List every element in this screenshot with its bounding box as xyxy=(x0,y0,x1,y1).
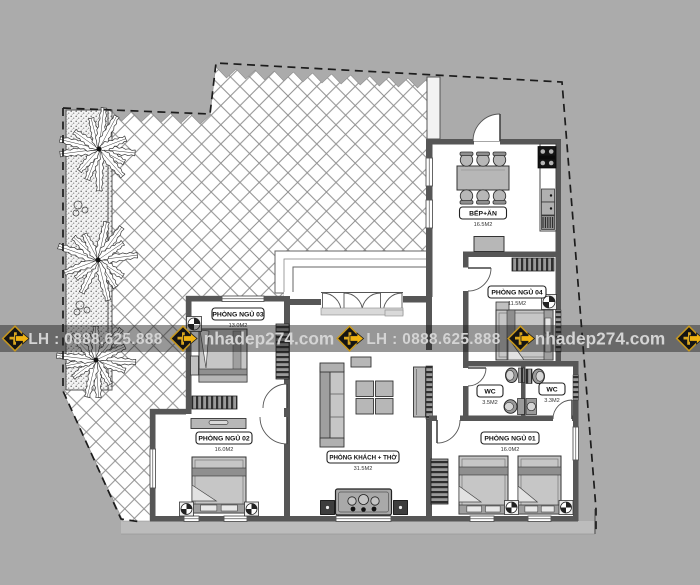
svg-text:31.5M2: 31.5M2 xyxy=(354,466,373,472)
svg-text:16.0M2: 16.0M2 xyxy=(501,447,520,453)
svg-text:WC: WC xyxy=(484,388,495,395)
svg-text:LH : 0888.625.888: LH : 0888.625.888 xyxy=(28,331,162,348)
svg-text:LH : 0888.625.888: LH : 0888.625.888 xyxy=(366,331,500,348)
svg-text:nhadep274.com: nhadep274.com xyxy=(535,329,666,349)
svg-text:nhadep274.com: nhadep274.com xyxy=(204,329,335,349)
svg-text:16.0M2: 16.0M2 xyxy=(215,447,234,453)
svg-text:3.5M2: 3.5M2 xyxy=(482,400,498,406)
svg-text:PHÒNG NGỦ 04: PHÒNG NGỦ 04 xyxy=(491,287,543,296)
svg-text:WC: WC xyxy=(546,386,557,393)
svg-text:PHÒNG NGỦ 02: PHÒNG NGỦ 02 xyxy=(198,433,250,442)
svg-text:16.5M2: 16.5M2 xyxy=(474,222,493,228)
svg-text:PHÒNG NGỦ 01: PHÒNG NGỦ 01 xyxy=(484,433,536,442)
svg-text:PHÒNG KHÁCH + THỜ: PHÒNG KHÁCH + THỜ xyxy=(329,453,397,461)
svg-text:PHÒNG NGỦ 03: PHÒNG NGỦ 03 xyxy=(212,309,264,318)
svg-text:3.3M2: 3.3M2 xyxy=(544,398,560,404)
svg-text:11.5M2: 11.5M2 xyxy=(508,301,526,307)
